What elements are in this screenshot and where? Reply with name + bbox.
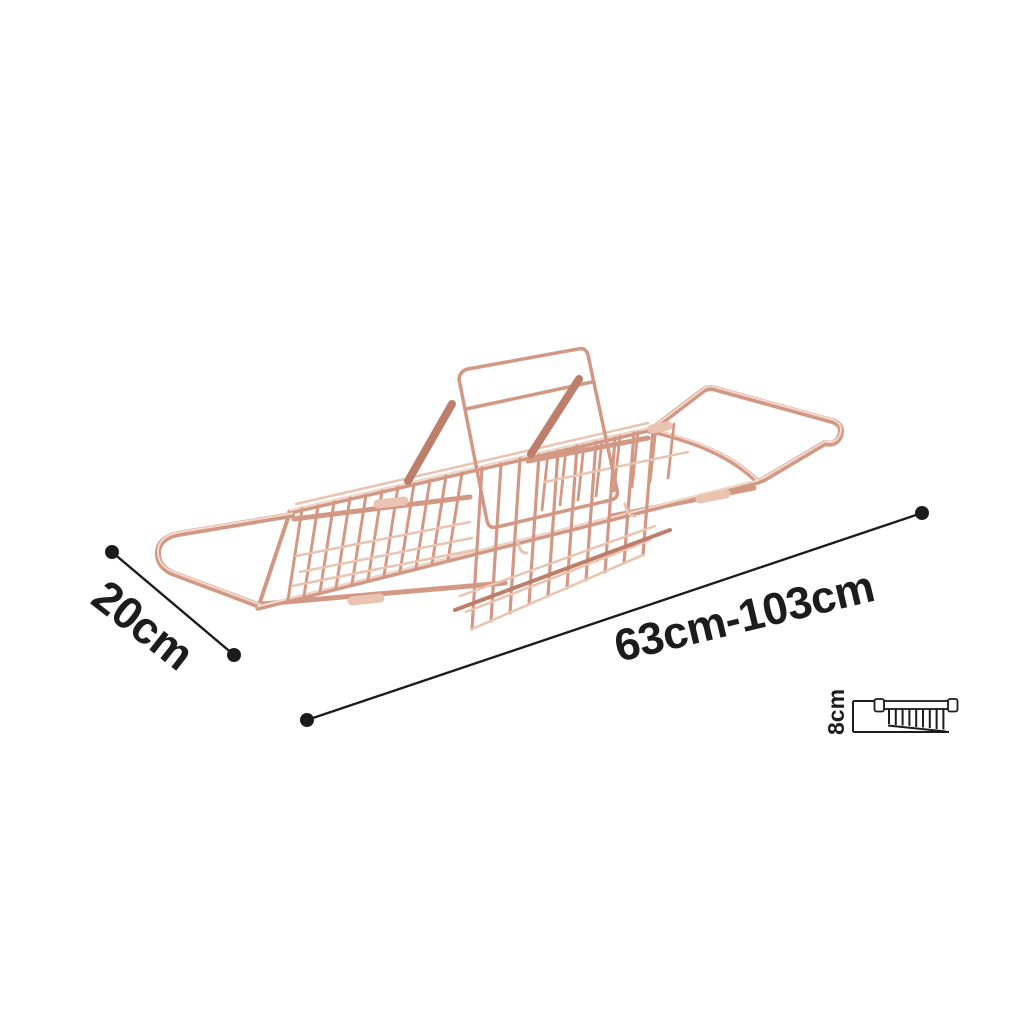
- side-view-cap-right: [948, 699, 958, 712]
- length-dot-left: [300, 713, 314, 727]
- side-view-cap-left: [875, 699, 885, 712]
- side-view-bar: [884, 701, 949, 709]
- height-dimension-label: 8cm: [823, 689, 849, 735]
- height-side-view-icon: [853, 699, 958, 732]
- center-under-rail: [455, 530, 670, 610]
- left-end-wire: [258, 512, 290, 608]
- length-dot-right: [915, 506, 929, 520]
- width-dot-bottom: [227, 648, 241, 662]
- width-dot-top: [105, 545, 119, 559]
- width-dimension-label: 20cm: [83, 570, 204, 680]
- product-dimension-diagram: 20cm 63cm-103cm 8cm: [0, 0, 1024, 1024]
- product-illustration: [158, 349, 841, 629]
- length-dimension-label: 63cm-103cm: [609, 560, 879, 672]
